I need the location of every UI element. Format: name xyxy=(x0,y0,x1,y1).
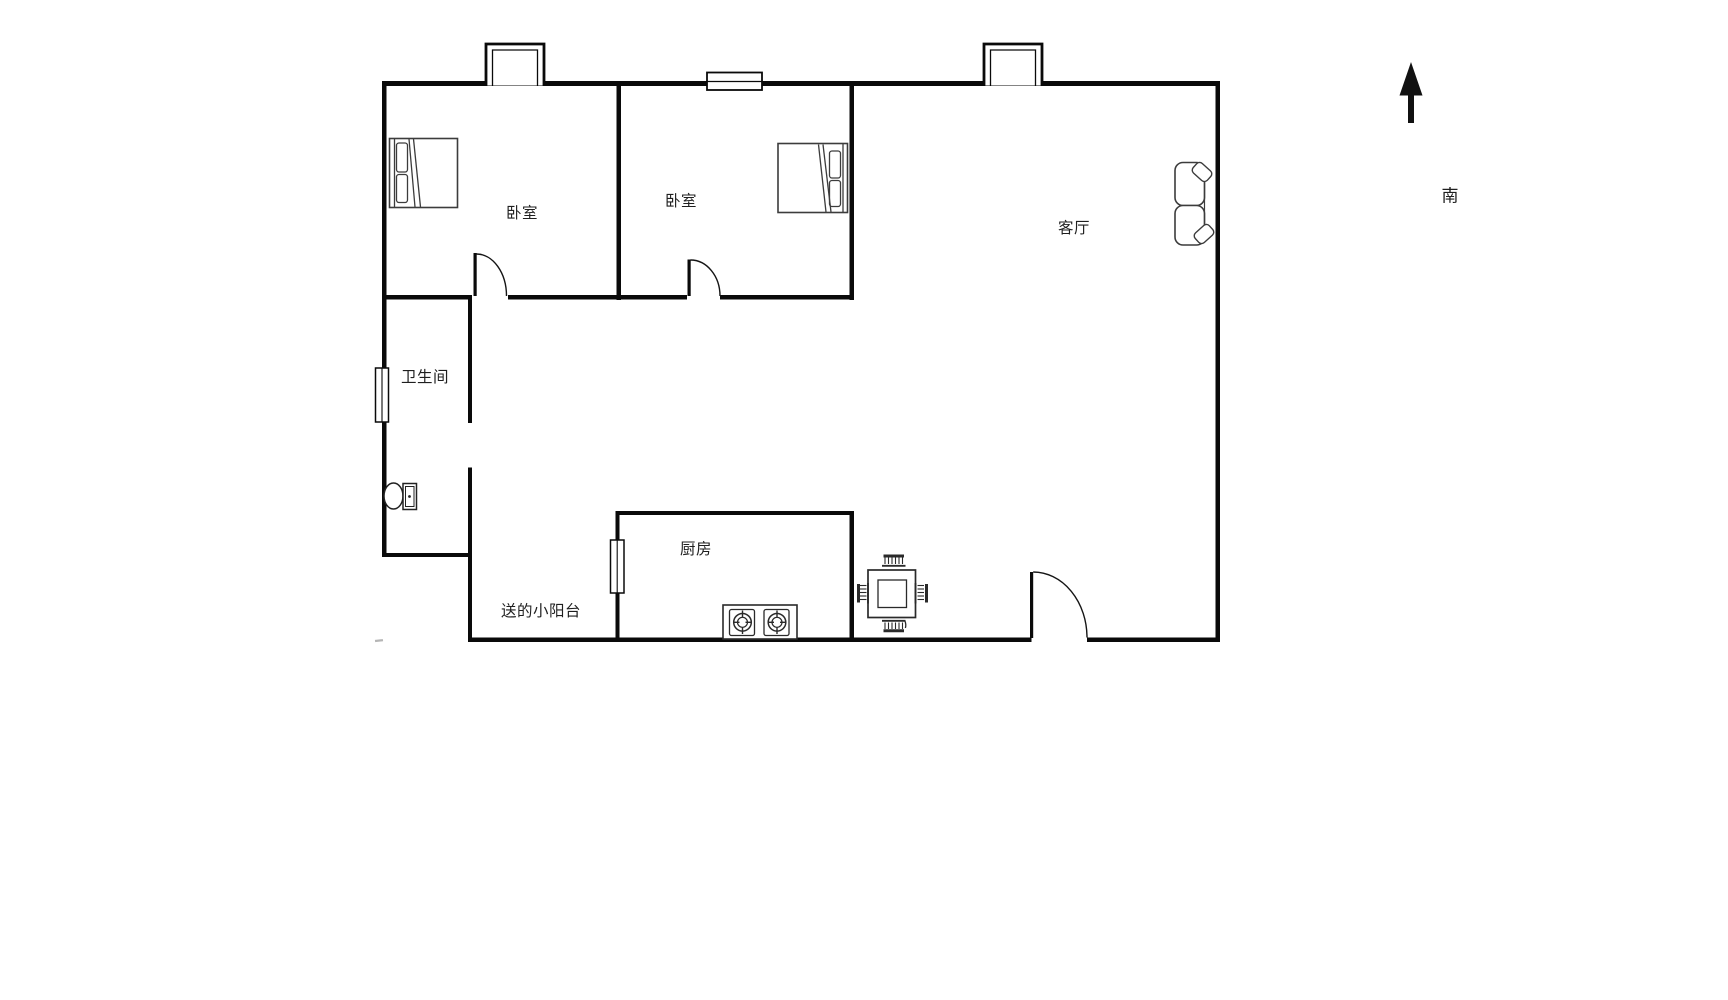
toilet-icon xyxy=(384,483,417,510)
floor-plan-drawing xyxy=(0,0,1728,1000)
chair-bottom-icon xyxy=(882,621,906,631)
living-room-label: 客厅 xyxy=(1058,216,1090,238)
chair-left-icon xyxy=(859,583,869,604)
flue-bump-right xyxy=(984,44,1042,86)
door-bedroom2 xyxy=(688,260,721,297)
door-entry xyxy=(1030,572,1087,638)
wall-bedrooms-bottom-b xyxy=(508,295,687,300)
wall-left xyxy=(382,81,387,557)
wall-bedrooms-bottom-c xyxy=(720,295,854,300)
wall-bedroom2-living xyxy=(850,81,855,300)
gas-stove-icon xyxy=(723,605,797,639)
wall-right xyxy=(1216,81,1221,642)
sofa-icon xyxy=(1175,161,1215,245)
window-kitchen-left xyxy=(611,540,625,593)
balcony-label: 送的小阳台 xyxy=(501,599,581,621)
chair-right-icon xyxy=(916,583,927,604)
flue-bump-left xyxy=(486,44,544,86)
bathroom-label: 卫生间 xyxy=(401,365,449,387)
bedroom2-label: 卧室 xyxy=(665,189,697,211)
bedroom1-label: 卧室 xyxy=(506,201,538,223)
stray-mark xyxy=(905,621,906,629)
wall-bedroom-divider xyxy=(617,81,622,300)
floor-plan-page: 卧室 卧室 客厅 卫生间 厨房 送的小阳台 南 xyxy=(0,0,1728,1000)
door-bedroom1 xyxy=(474,253,507,296)
dining-table-icon xyxy=(859,556,927,631)
window-bedroom2-top xyxy=(707,73,762,91)
bed-icon-bedroom2 xyxy=(778,144,848,213)
wall-bedrooms-bottom-a xyxy=(383,295,471,300)
wall-kitchen-right xyxy=(850,511,855,642)
stray-dash xyxy=(375,639,383,642)
compass-south-label: 南 xyxy=(1442,182,1459,207)
window-bathroom-left xyxy=(376,368,389,422)
wall-bathroom-bottom xyxy=(382,553,472,557)
kitchen-label: 厨房 xyxy=(680,537,712,559)
bed-icon-bedroom1 xyxy=(390,139,458,208)
wall-bottom-right xyxy=(1087,638,1220,643)
wall-kitchen-top xyxy=(616,511,855,515)
chair-top-icon xyxy=(882,556,906,566)
north-arrow-icon xyxy=(1400,62,1423,123)
wall-bathroom-right-upper xyxy=(468,295,472,423)
